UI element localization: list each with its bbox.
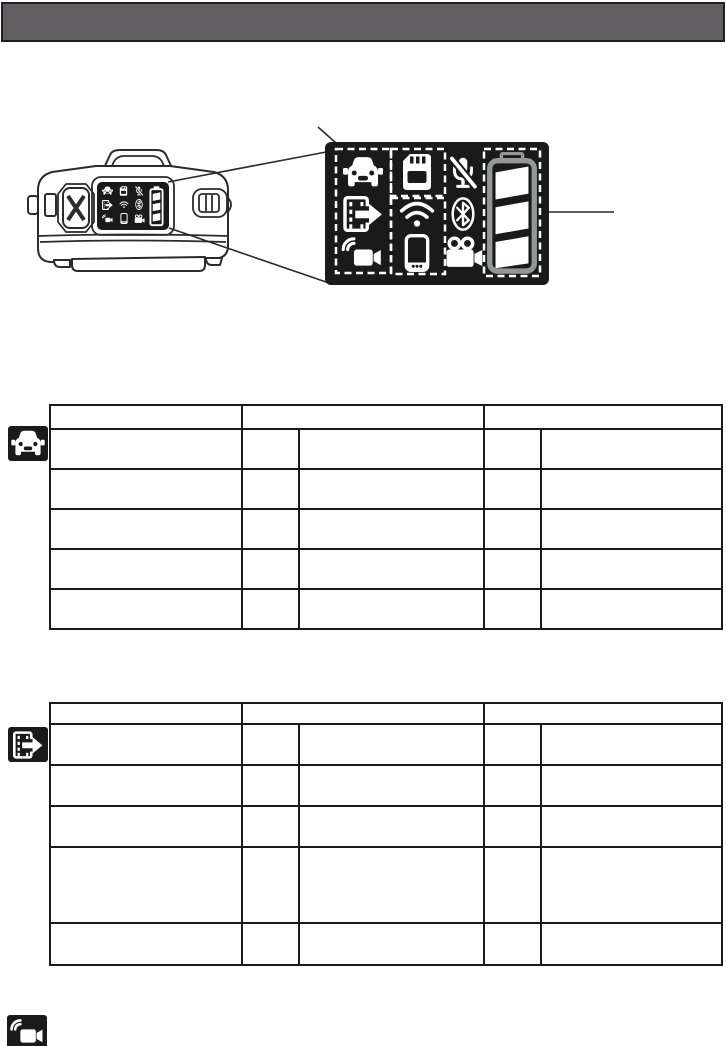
table-cell bbox=[484, 724, 541, 765]
table-cell bbox=[541, 806, 722, 847]
table-cell bbox=[541, 923, 722, 965]
table-cell bbox=[541, 724, 722, 765]
sd-card-icon bbox=[403, 154, 431, 190]
device-dial bbox=[58, 184, 94, 232]
table-cell bbox=[242, 806, 299, 847]
table-cell bbox=[484, 806, 541, 847]
table-cell bbox=[50, 847, 242, 923]
table-row bbox=[50, 847, 722, 923]
wireless-camera-icon-badge bbox=[7, 1015, 47, 1046]
table-row bbox=[50, 549, 722, 589]
table-cell bbox=[541, 549, 722, 589]
table-header-cell bbox=[50, 703, 242, 724]
table-row bbox=[50, 509, 722, 549]
table-row bbox=[50, 469, 722, 509]
table-cell bbox=[50, 509, 242, 549]
table-header-row bbox=[50, 703, 722, 724]
table-cell bbox=[541, 429, 722, 469]
table-cell bbox=[242, 589, 299, 629]
table-cell bbox=[484, 589, 541, 629]
table-cell bbox=[541, 509, 722, 549]
table-cell bbox=[242, 847, 299, 923]
table-cell bbox=[484, 549, 541, 589]
device-figure bbox=[0, 0, 726, 340]
table-cell bbox=[299, 724, 484, 765]
table-row bbox=[50, 806, 722, 847]
wireless-camera-icon bbox=[10, 1019, 44, 1046]
table-header-cell bbox=[50, 405, 242, 429]
table-cell bbox=[50, 806, 242, 847]
table-cell bbox=[242, 509, 299, 549]
table-cell bbox=[299, 847, 484, 923]
table-cell bbox=[484, 765, 541, 806]
table-cell bbox=[50, 765, 242, 806]
device-drawing bbox=[28, 150, 231, 271]
status-panel bbox=[325, 142, 549, 285]
car-icon-badge bbox=[8, 426, 48, 461]
table-cell bbox=[484, 923, 541, 965]
table-header-cell bbox=[242, 405, 484, 429]
table-cell bbox=[484, 469, 541, 509]
table-header-row bbox=[50, 405, 722, 429]
table-cell bbox=[50, 923, 242, 965]
table-header-cell bbox=[484, 703, 722, 724]
table-cell bbox=[541, 589, 722, 629]
table-2 bbox=[49, 702, 723, 966]
table-cell bbox=[50, 429, 242, 469]
table-cell bbox=[50, 724, 242, 765]
table-cell bbox=[242, 923, 299, 965]
table-cell bbox=[484, 429, 541, 469]
table-cell bbox=[484, 509, 541, 549]
table-row bbox=[50, 765, 722, 806]
table-row bbox=[50, 589, 722, 629]
table-cell bbox=[242, 429, 299, 469]
battery-icon bbox=[490, 153, 535, 271]
table-header-cell bbox=[484, 405, 722, 429]
table-cell bbox=[299, 806, 484, 847]
table-cell bbox=[242, 765, 299, 806]
table-cell bbox=[299, 469, 484, 509]
movie-export-icon-badge bbox=[8, 727, 48, 762]
leader-line-top bbox=[168, 149, 342, 182]
table-cell bbox=[50, 469, 242, 509]
table-1 bbox=[49, 404, 723, 630]
table-cell bbox=[50, 589, 242, 629]
table-header-cell bbox=[242, 703, 484, 724]
table-cell bbox=[299, 509, 484, 549]
table-cell bbox=[541, 847, 722, 923]
table-cell bbox=[299, 765, 484, 806]
table-cell bbox=[242, 469, 299, 509]
table-cell bbox=[541, 469, 722, 509]
table-cell bbox=[242, 724, 299, 765]
table-row bbox=[50, 923, 722, 965]
table-cell bbox=[299, 549, 484, 589]
table-cell bbox=[50, 549, 242, 589]
table-cell bbox=[299, 923, 484, 965]
car-icon bbox=[11, 430, 45, 458]
table-cell bbox=[299, 589, 484, 629]
table-cell bbox=[299, 429, 484, 469]
table-cell bbox=[541, 765, 722, 806]
table-cell bbox=[242, 549, 299, 589]
manual-page bbox=[0, 0, 726, 1046]
table-row bbox=[50, 429, 722, 469]
movie-export-icon bbox=[13, 731, 43, 759]
device-display bbox=[92, 177, 174, 235]
table-row bbox=[50, 724, 722, 765]
table-cell bbox=[484, 847, 541, 923]
